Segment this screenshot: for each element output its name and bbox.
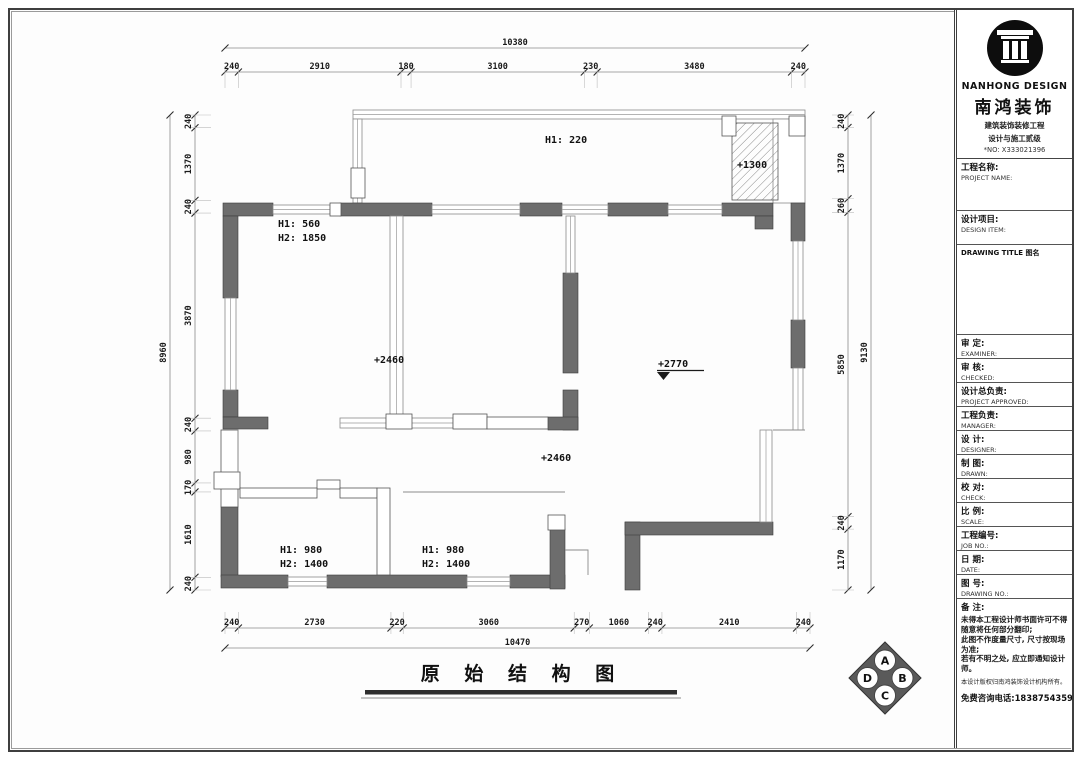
dim-segment-top: 180 bbox=[398, 62, 413, 72]
compass-c: C bbox=[881, 690, 889, 703]
dim-segment-left: 240 bbox=[184, 114, 194, 129]
field-drawing-no: 图 号: DRAWING NO.: bbox=[957, 575, 1072, 599]
label-room1-h1: H1: 560 bbox=[278, 219, 320, 230]
dim-segment-bottom: 240 bbox=[224, 618, 239, 628]
field-project-approved: 设计总负责: PROJECT APPROVED: bbox=[957, 383, 1072, 407]
dim-segment-right: 1370 bbox=[837, 153, 847, 173]
dim-segment-bottom: 3060 bbox=[478, 618, 498, 628]
dim-segment-bottom: 270 bbox=[574, 618, 589, 628]
label-balcony-height: H1: 220 bbox=[545, 135, 587, 146]
field-drawing-title: DRAWING TITLE 图名 bbox=[957, 245, 1072, 335]
floor-plan-svg: H1: 220 +1300 H1: 560 H2: 1850 +2460 +27… bbox=[10, 10, 955, 748]
dim-segment-right: 1170 bbox=[837, 549, 847, 569]
dim-total-top: 10380 bbox=[502, 38, 528, 48]
drawing-title: 原 始 结 构 图 bbox=[361, 662, 681, 698]
field-drawn: 制 图: DRAWN: bbox=[957, 455, 1072, 479]
dim-segment-top: 3100 bbox=[487, 62, 507, 72]
dim-segment-bottom: 220 bbox=[389, 618, 404, 628]
field-job-no: 工程编号: JOB NO.: bbox=[957, 527, 1072, 551]
field-date: 日 期: DATE: bbox=[957, 551, 1072, 575]
dim-segment-right: 260 bbox=[837, 198, 847, 213]
field-scale: 比 例: SCALE: bbox=[957, 503, 1072, 527]
remark-line: 随意将任何部分翻印; bbox=[961, 625, 1068, 635]
remarks-label: 备 注: bbox=[961, 601, 1068, 613]
dim-segment-top: 3480 bbox=[684, 62, 704, 72]
field-design-item: 设计项目: DESIGN ITEM: bbox=[957, 211, 1072, 245]
dim-segment-left: 3870 bbox=[184, 305, 194, 325]
brand-name-cn: 南鸿装饰 bbox=[960, 93, 1069, 118]
cert-number: *NO: X333021396 bbox=[960, 146, 1069, 154]
field-check: 校 对: CHECK: bbox=[957, 479, 1072, 503]
dim-segment-top: 2910 bbox=[309, 62, 329, 72]
field-checked: 审 核: CHECKED: bbox=[957, 359, 1072, 383]
remarks-section: 备 注: 未得本工程设计师书面许可不得随意将任何部分翻印;此图不作度量尺寸, 尺… bbox=[957, 599, 1072, 748]
cert-line-1: 建筑装饰装修工程 bbox=[960, 120, 1069, 131]
dim-segment-left: 170 bbox=[184, 480, 194, 495]
dim-segment-bottom: 1060 bbox=[609, 618, 629, 628]
dim-segment-top: 230 bbox=[583, 62, 598, 72]
dim-total-left: 8960 bbox=[159, 342, 169, 362]
title-block-panel: NANHONG DESIGN 南鸿装饰 建筑装饰装修工程 设计与施工贰级 *NO… bbox=[954, 10, 1072, 748]
balcony-outline bbox=[351, 110, 805, 203]
brand-name-en: NANHONG DESIGN bbox=[960, 81, 1069, 92]
hotline-phone: 免费咨询电话:18387543593 bbox=[961, 692, 1068, 704]
dim-segment-left: 240 bbox=[184, 417, 194, 432]
company-header: NANHONG DESIGN 南鸿装饰 建筑装饰装修工程 设计与施工贰级 *NO… bbox=[957, 10, 1072, 159]
dim-segment-left: 240 bbox=[184, 576, 194, 591]
company-logo bbox=[985, 18, 1045, 78]
level-marker-triangle bbox=[657, 372, 670, 380]
dim-segment-bottom: 240 bbox=[796, 618, 811, 628]
dim-total-bottom: 10470 bbox=[505, 638, 531, 648]
label-room4-h2: H2: 1400 bbox=[422, 559, 470, 570]
remark-line: 若有不明之处, 应立即通知设计 bbox=[961, 654, 1068, 664]
label-bay-level: +1300 bbox=[737, 160, 767, 171]
remark-line: 师。 bbox=[961, 664, 1068, 674]
cert-line-2: 设计与施工贰级 bbox=[960, 133, 1069, 144]
dim-segment-left: 1610 bbox=[184, 524, 194, 544]
dim-segment-right: 240 bbox=[837, 515, 847, 530]
remark-line: 此图不作度量尺寸, 尺寸按现场 bbox=[961, 635, 1068, 645]
copyright-note: 本设计版权归南鸿装饰设计机构所有。 bbox=[961, 677, 1068, 686]
compass-b: B bbox=[898, 672, 906, 685]
drawing-title-text: 原 始 结 构 图 bbox=[421, 662, 623, 685]
dim-segment-left: 1370 bbox=[184, 154, 194, 174]
field-designer: 设 计: DESIGNER: bbox=[957, 431, 1072, 455]
label-room4-h1: H1: 980 bbox=[422, 545, 464, 556]
columns-layer bbox=[214, 203, 805, 575]
dim-segment-bottom: 240 bbox=[648, 618, 663, 628]
label-room3-h1: H1: 980 bbox=[280, 545, 322, 556]
dim-segment-left: 240 bbox=[184, 199, 194, 214]
label-room1-h2: H2: 1850 bbox=[278, 233, 326, 244]
dim-segment-left: 980 bbox=[184, 449, 194, 464]
walls-layer bbox=[221, 203, 805, 590]
dim-total-right: 9130 bbox=[860, 342, 870, 362]
floor-plan-drawing: H1: 220 +1300 H1: 560 H2: 1850 +2460 +27… bbox=[10, 10, 955, 748]
compass-d: D bbox=[863, 672, 872, 685]
dim-segment-bottom: 2410 bbox=[719, 618, 739, 628]
remark-line: 为准; bbox=[961, 645, 1068, 655]
dim-segment-top: 240 bbox=[791, 62, 806, 72]
elevation-compass: A B C D bbox=[849, 642, 921, 714]
plan-labels: H1: 220 +1300 H1: 560 H2: 1850 +2460 +27… bbox=[278, 135, 767, 570]
label-room3-h2: H2: 1400 bbox=[280, 559, 328, 570]
label-level-living: +2770 bbox=[658, 359, 688, 370]
dim-segment-bottom: 2730 bbox=[304, 618, 324, 628]
field-examiner: 审 定: EXAMINER: bbox=[957, 335, 1072, 359]
remark-line: 未得本工程设计师书面许可不得 bbox=[961, 615, 1068, 625]
label-level-mid: +2460 bbox=[374, 355, 404, 366]
dim-segment-top: 240 bbox=[224, 62, 239, 72]
field-manager: 工程负责: MANAGER: bbox=[957, 407, 1072, 431]
field-project-name: 工程名称: PROJECT NAME: bbox=[957, 159, 1072, 211]
dim-segment-right: 5850 bbox=[837, 354, 847, 374]
sheet-frame: H1: 220 +1300 H1: 560 H2: 1850 +2460 +27… bbox=[8, 8, 1074, 752]
title-underline-thick bbox=[365, 690, 677, 695]
label-level-corridor: +2460 bbox=[541, 453, 571, 464]
remarks-list: 未得本工程设计师书面许可不得随意将任何部分翻印;此图不作度量尺寸, 尺寸按现场为… bbox=[961, 615, 1068, 674]
dim-segment-right: 240 bbox=[837, 114, 847, 129]
compass-a: A bbox=[881, 655, 890, 668]
